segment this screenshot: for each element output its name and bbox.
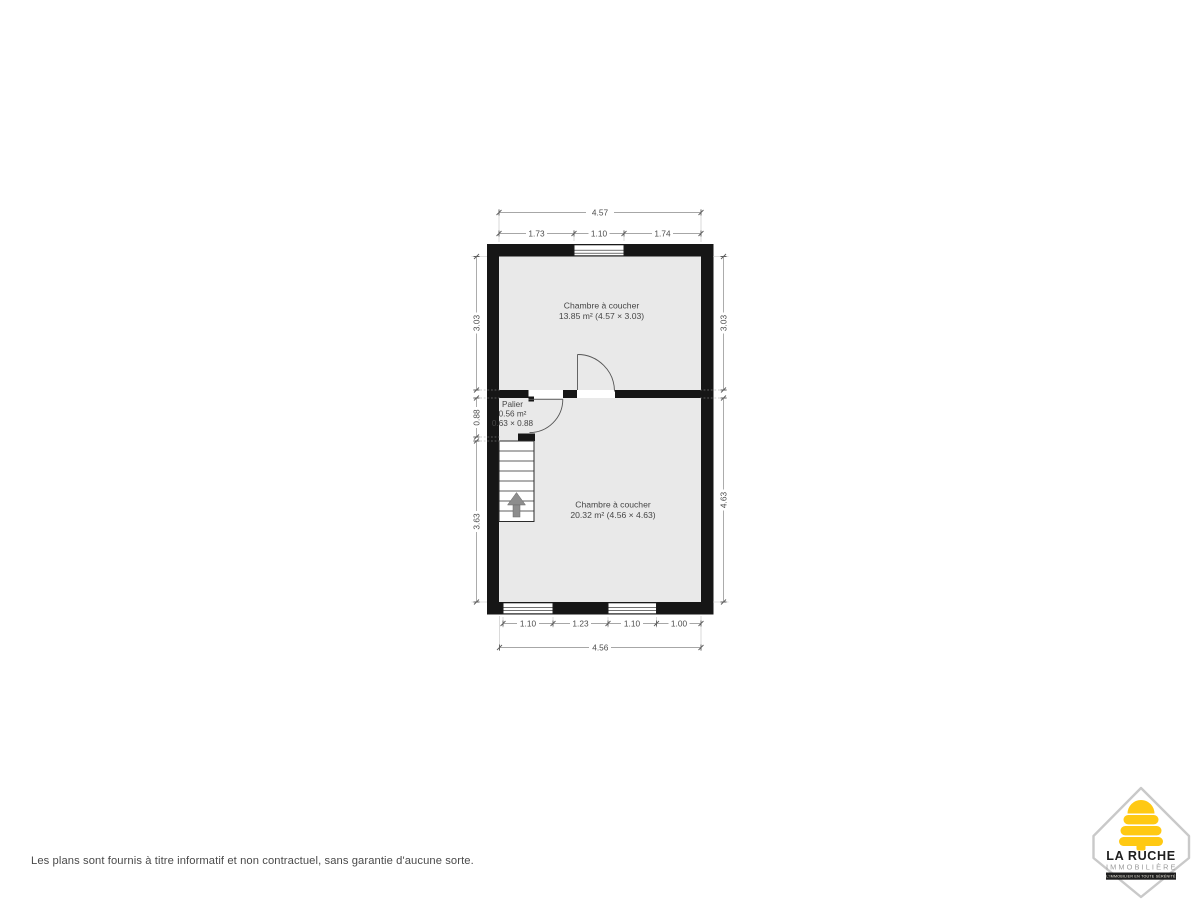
dim-label-left-1: 3.03 bbox=[471, 315, 481, 332]
wall-left bbox=[487, 244, 499, 615]
dim-label-right-2: 4.63 bbox=[718, 492, 728, 509]
room-fill-top-bedroom bbox=[499, 256, 701, 390]
dim-label-left-3: 3.63 bbox=[471, 513, 481, 530]
wall-palier-stair-stub bbox=[518, 434, 535, 442]
dim-label-bottom-seg1: 1.10 bbox=[520, 618, 537, 628]
room-label-top-bedroom-detail: 13.85 m² (4.57 × 3.03) bbox=[559, 311, 644, 321]
floor-plan: 4.57 1.73 1.10 1.74 1.10 1.23 1.10 1.00 … bbox=[450, 195, 745, 665]
stairs-up-arrow-stem bbox=[513, 505, 520, 517]
dim-label-top-seg2: 1.10 bbox=[591, 228, 608, 238]
wall-middle-seg3 bbox=[615, 390, 701, 398]
dim-label-right-1: 3.03 bbox=[718, 315, 728, 332]
agency-logo: LA RUCHE IMMOBILIÈRE - L'IMMOBILIER EN T… bbox=[1083, 770, 1197, 906]
beehive-band-1 bbox=[1124, 815, 1159, 824]
logo-subtitle: IMMOBILIÈRE bbox=[1106, 863, 1178, 872]
wall-right bbox=[701, 244, 714, 615]
dim-label-top-seg1: 1.73 bbox=[528, 228, 545, 238]
floor-plan-svg: 4.57 1.73 1.10 1.74 1.10 1.23 1.10 1.00 … bbox=[450, 195, 745, 665]
wall-middle-seg2 bbox=[563, 390, 577, 398]
wall-middle-seg1 bbox=[499, 390, 529, 398]
logo-tagline: - L'IMMOBILIER EN TOUTE SÉRÉNITÉ - bbox=[1104, 874, 1179, 879]
dim-label-bottom-total: 4.56 bbox=[592, 642, 609, 652]
window-bottom-left bbox=[503, 603, 553, 614]
room-label-palier-area: 0.56 m² bbox=[499, 410, 527, 419]
dim-label-top-seg3: 1.74 bbox=[654, 228, 671, 238]
beehive-band-2 bbox=[1121, 826, 1162, 835]
dim-label-bottom-seg3: 1.10 bbox=[624, 618, 641, 628]
dim-label-bottom-seg2: 1.23 bbox=[572, 618, 589, 628]
room-label-top-bedroom-name: Chambre à coucher bbox=[564, 301, 640, 311]
staircase bbox=[499, 441, 534, 522]
room-label-palier-name: Palier bbox=[502, 400, 523, 409]
dim-label-bottom-seg4: 1.00 bbox=[671, 618, 688, 628]
room-label-bottom-bedroom-name: Chambre à coucher bbox=[575, 500, 651, 510]
room-label-palier-size: 0.63 × 0.88 bbox=[492, 419, 534, 428]
logo-title: LA RUCHE bbox=[1106, 849, 1175, 863]
window-bottom-right bbox=[608, 603, 657, 614]
room-label-bottom-bedroom-detail: 20.32 m² (4.56 × 4.63) bbox=[570, 510, 655, 520]
dim-label-top-total: 4.57 bbox=[592, 207, 609, 217]
agency-logo-svg: LA RUCHE IMMOBILIÈRE - L'IMMOBILIER EN T… bbox=[1083, 770, 1197, 906]
dim-label-left-2: 0.88 bbox=[471, 409, 481, 426]
disclaimer-text: Les plans sont fournis à titre informati… bbox=[31, 855, 474, 867]
